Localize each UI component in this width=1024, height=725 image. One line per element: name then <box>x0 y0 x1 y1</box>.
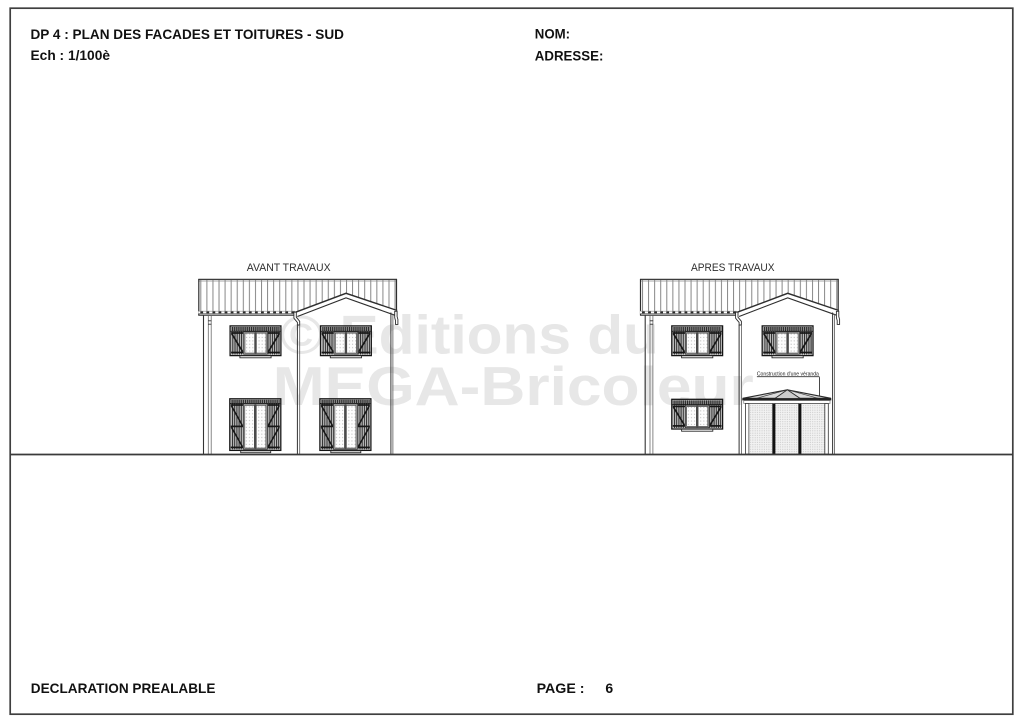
svg-text:Ech : 1/100è: Ech : 1/100è <box>31 47 111 63</box>
svg-text:DP 4 : PLAN DES FACADES ET TOI: DP 4 : PLAN DES FACADES ET TOITURES - SU… <box>31 26 345 42</box>
svg-text:AVANT TRAVAUX: AVANT TRAVAUX <box>247 262 331 274</box>
svg-text:DECLARATION PREALABLE: DECLARATION PREALABLE <box>31 680 216 696</box>
svg-text:PAGE :: PAGE : <box>537 680 585 696</box>
svg-text:ADRESSE:: ADRESSE: <box>535 47 604 63</box>
svg-text:APRES TRAVAUX: APRES TRAVAUX <box>691 262 775 274</box>
svg-text:NOM:: NOM: <box>535 26 570 42</box>
svg-text:6: 6 <box>605 680 613 696</box>
